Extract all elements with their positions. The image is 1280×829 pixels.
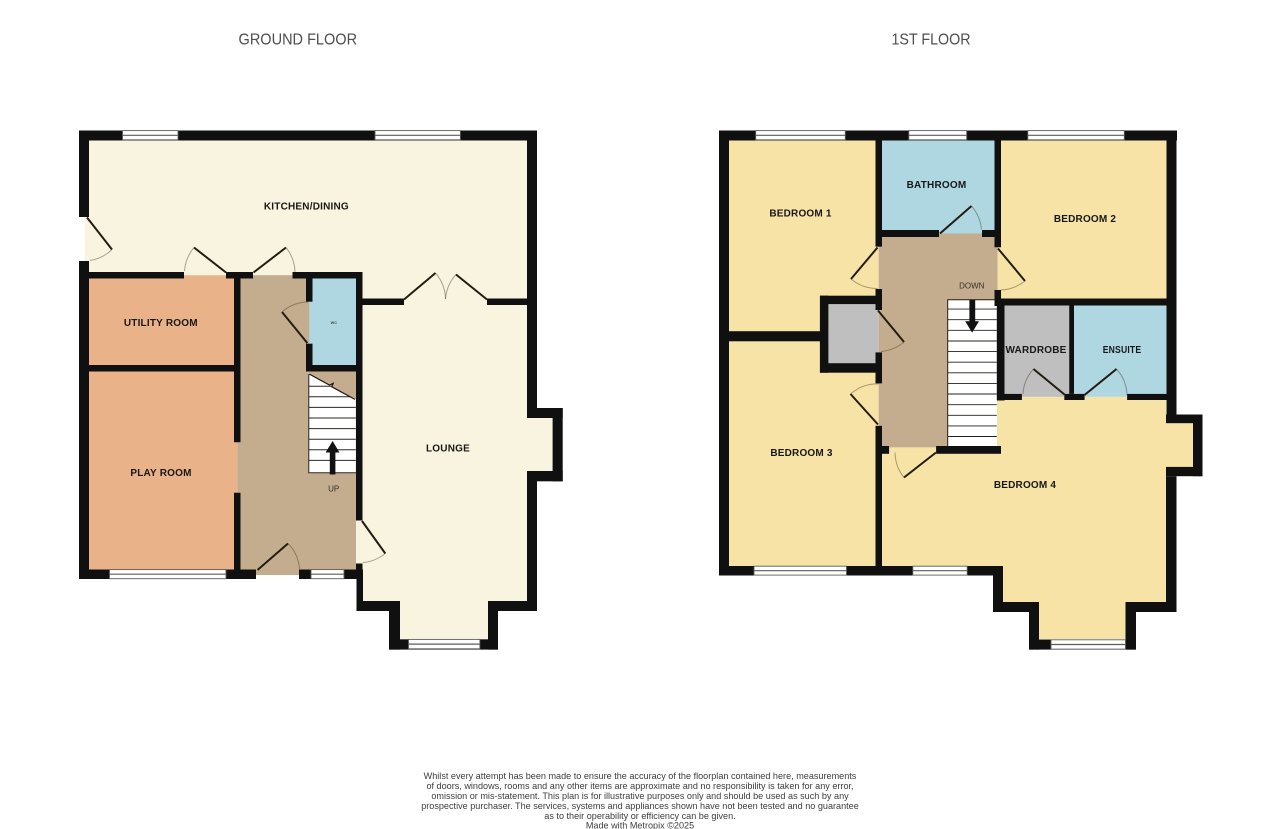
svg-text:1ST FLOOR: 1ST FLOOR: [892, 32, 971, 49]
svg-text:UTILITY ROOM: UTILITY ROOM: [124, 318, 198, 329]
svg-text:Made with Metropix ©2025: Made with Metropix ©2025: [586, 820, 694, 829]
svg-text:DOWN: DOWN: [959, 282, 985, 291]
svg-text:BATHROOM: BATHROOM: [907, 180, 967, 191]
svg-text:LOUNGE: LOUNGE: [426, 444, 470, 455]
svg-text:GROUND FLOOR: GROUND FLOOR: [239, 32, 358, 49]
svg-text:WC: WC: [331, 321, 338, 325]
svg-text:Whilst every attempt has been: Whilst every attempt has been made to en…: [424, 771, 857, 781]
svg-text:UP: UP: [328, 485, 339, 494]
svg-text:BEDROOM 2: BEDROOM 2: [1054, 214, 1117, 225]
svg-text:omission or mis-statement. Thi: omission or mis-statement. This plan is …: [431, 791, 849, 801]
svg-text:KITCHEN/DINING: KITCHEN/DINING: [264, 202, 349, 213]
svg-text:ENSUITE: ENSUITE: [1103, 345, 1142, 356]
svg-text:as to their operability or eff: as to their operability or efficiency ca…: [544, 811, 735, 821]
svg-text:BEDROOM 3: BEDROOM 3: [770, 448, 833, 459]
svg-text:PLAY ROOM: PLAY ROOM: [130, 468, 191, 479]
svg-text:WARDROBE: WARDROBE: [1005, 345, 1066, 356]
svg-text:of doors, windows, rooms and a: of doors, windows, rooms and any other i…: [426, 781, 853, 791]
svg-text:BEDROOM 4: BEDROOM 4: [994, 480, 1057, 491]
svg-text:prospective purchaser. The ser: prospective purchaser. The services, sys…: [421, 801, 859, 811]
svg-text:BEDROOM 1: BEDROOM 1: [769, 209, 832, 220]
